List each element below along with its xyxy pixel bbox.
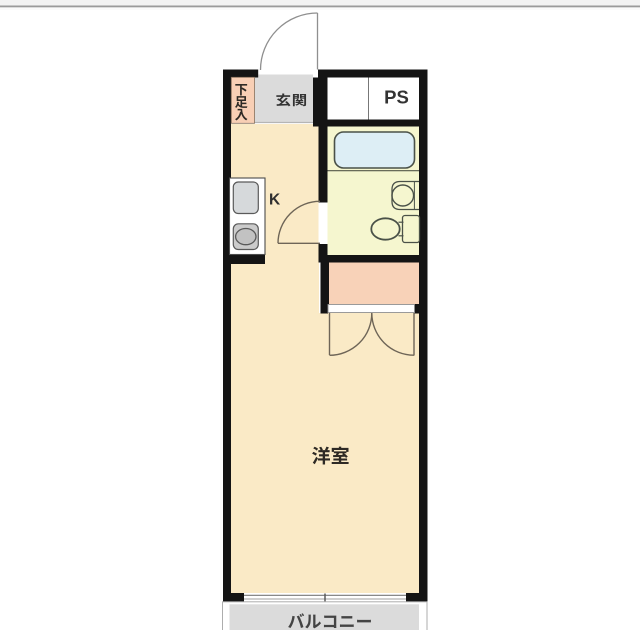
svg-text:PS: PS [384,87,409,108]
svg-text:K: K [269,192,281,209]
